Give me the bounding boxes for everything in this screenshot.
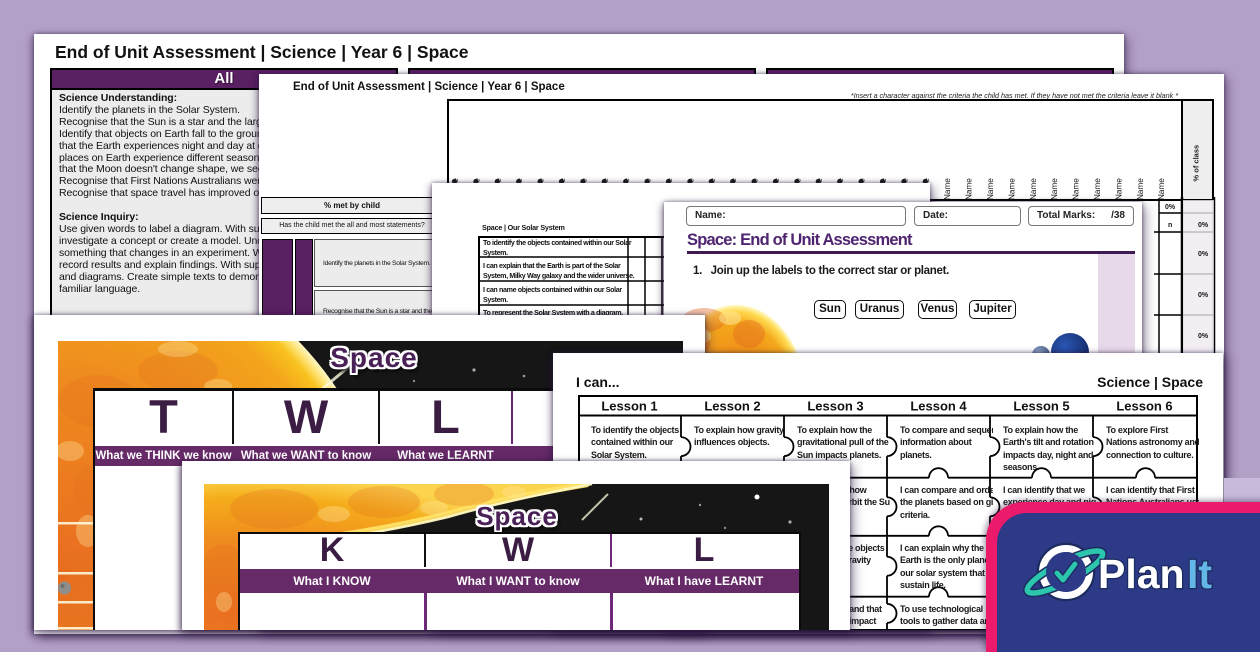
svg-text:Name: Name (965, 178, 974, 200)
svg-text:Lesson 4: Lesson 4 (910, 399, 967, 414)
svg-text:Lesson 5: Lesson 5 (1013, 399, 1069, 414)
svg-text:0%: 0% (1198, 251, 1209, 258)
svg-text:Name: Name (1007, 178, 1016, 200)
svg-text:0%: 0% (1198, 333, 1209, 340)
svg-text:Plan: Plan (1098, 551, 1185, 597)
svg-text:Name: Name (1114, 178, 1123, 200)
svg-text:Name: Name (1050, 178, 1059, 200)
svg-text:Lesson 1: Lesson 1 (601, 399, 657, 414)
svg-text:Name: Name (943, 178, 952, 200)
svg-text:n: n (1168, 222, 1172, 229)
svg-text:Lesson 6: Lesson 6 (1116, 399, 1172, 414)
svg-text:Lesson 3: Lesson 3 (807, 399, 863, 414)
svg-text:Name: Name (1072, 178, 1081, 200)
svg-text:Name: Name (986, 178, 995, 200)
svg-text:It: It (1187, 551, 1212, 597)
svg-text:Name: Name (1093, 178, 1102, 200)
svg-text:0%: 0% (1198, 292, 1209, 299)
svg-text:Name: Name (1029, 178, 1038, 200)
svg-text:0%: 0% (1198, 222, 1209, 229)
svg-text:Lesson 2: Lesson 2 (704, 399, 760, 414)
svg-text:0%: 0% (1165, 204, 1176, 211)
